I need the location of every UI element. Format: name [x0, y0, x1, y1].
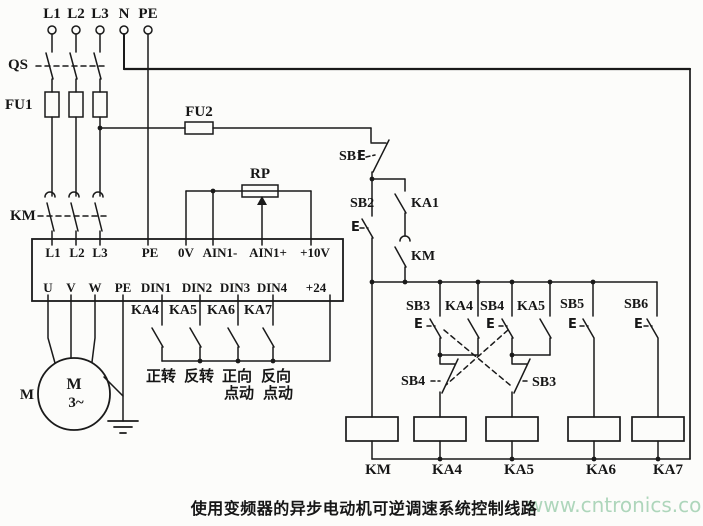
inv-term-din1: DIN1	[141, 281, 171, 294]
sb6-label: SB6	[624, 298, 648, 312]
sb6-actuator: E	[634, 318, 643, 331]
sb2-ka1-km-branch	[360, 179, 410, 282]
sb5-actuator: E	[568, 318, 577, 331]
fu2-fuse	[98, 122, 371, 134]
coil-label-ka5: KA5	[504, 463, 534, 478]
label-fwd-jog-2: 点动	[224, 386, 254, 401]
inv-term-l1: L1	[45, 246, 60, 259]
coil-label-ka7: KA7	[653, 463, 683, 478]
sb2-actuator: E	[351, 221, 360, 234]
contact-label-ka7: KA7	[244, 304, 272, 318]
inv-term-din2: DIN2	[182, 281, 212, 294]
inv-term-10v: +10V	[300, 246, 330, 259]
inv-term-ain1-minus: AIN1-	[203, 246, 238, 259]
motor-symbol: M	[66, 377, 81, 393]
fu1-fuses	[45, 92, 107, 196]
supply-terminal-circles	[48, 26, 152, 34]
inv-term-ain1-plus: AIN1+	[249, 246, 287, 259]
rp-potentiometer	[186, 185, 311, 239]
terminal-label-n: N	[119, 7, 130, 22]
contact-label-ka4: KA4	[131, 304, 159, 318]
label-fwd-jog-1: 正向	[222, 369, 252, 384]
qs-label: QS	[8, 58, 28, 73]
inv-term-pe-top: PE	[142, 246, 159, 259]
return-bus	[372, 441, 690, 461]
motor	[38, 301, 138, 433]
inv-term-din3: DIN3	[220, 281, 250, 294]
contact-label-ka5: KA5	[169, 304, 197, 318]
coil-label-ka4: KA4	[432, 463, 462, 478]
sb3-label: SB3	[406, 300, 430, 314]
ka5-aux-label: KA5	[517, 300, 545, 314]
label-rev-jog-2: 点动	[263, 386, 293, 401]
circuit-diagram-graphics	[0, 0, 703, 526]
inv-term-w: W	[89, 281, 102, 294]
km-label: KM	[10, 209, 36, 224]
terminal-label-l1: L1	[43, 7, 61, 22]
inv-term-v: V	[66, 281, 75, 294]
terminal-label-l2: L2	[67, 7, 85, 22]
qs-switch	[36, 34, 106, 92]
inv-term-24v: +24	[306, 281, 326, 294]
sb3-actuator: E	[414, 318, 423, 331]
label-reverse: 反转	[184, 369, 214, 384]
inv-term-0v: 0V	[178, 246, 194, 259]
sb1-stop-button	[366, 128, 389, 181]
ka4-aux-label: KA4	[445, 300, 473, 314]
inv-term-pe-bottom: PE	[115, 281, 132, 294]
circuit-diagram-page: L1 L2 L3 N PE QS FU1 FU2 KM RP L1 L2 L3 …	[0, 0, 703, 526]
inv-term-l2: L2	[69, 246, 84, 259]
fu2-label: FU2	[185, 105, 213, 120]
coil-label-ka6: KA6	[586, 463, 616, 478]
rp-label: RP	[250, 167, 270, 182]
label-rev-jog-1: 反向	[261, 369, 291, 384]
sb4-label: SB4	[480, 300, 504, 314]
sb2-label: SB2	[350, 197, 374, 211]
terminal-label-pe: PE	[138, 7, 157, 22]
sb4-actuator: E	[486, 318, 495, 331]
sb1-actuator: E	[357, 150, 366, 163]
sb5-label: SB5	[560, 298, 584, 312]
terminal-label-l3: L3	[91, 7, 109, 22]
coil-label-km: KM	[365, 463, 391, 478]
mechanical-linkage-dashes	[444, 330, 510, 385]
km-main-contacts	[38, 192, 106, 239]
coils	[346, 417, 684, 441]
sb4-nc-label: SB4	[401, 375, 425, 389]
km-aux-label: KM	[411, 250, 435, 264]
motor-phase: 3~	[68, 396, 83, 411]
motor-outer-label: M	[20, 388, 34, 403]
label-forward: 正转	[146, 369, 176, 384]
contact-label-ka6: KA6	[207, 304, 235, 318]
inv-term-u: U	[43, 281, 52, 294]
inv-term-din4: DIN4	[257, 281, 287, 294]
inv-term-l3: L3	[92, 246, 107, 259]
sb3-nc-label: SB3	[532, 376, 556, 390]
fu1-label: FU1	[5, 98, 33, 113]
watermark: www.cntronics.com	[527, 493, 703, 517]
diagram-caption: 使用变频器的异步电动机可逆调速系统控制线路	[191, 501, 538, 517]
ka1-label: KA1	[411, 197, 439, 211]
